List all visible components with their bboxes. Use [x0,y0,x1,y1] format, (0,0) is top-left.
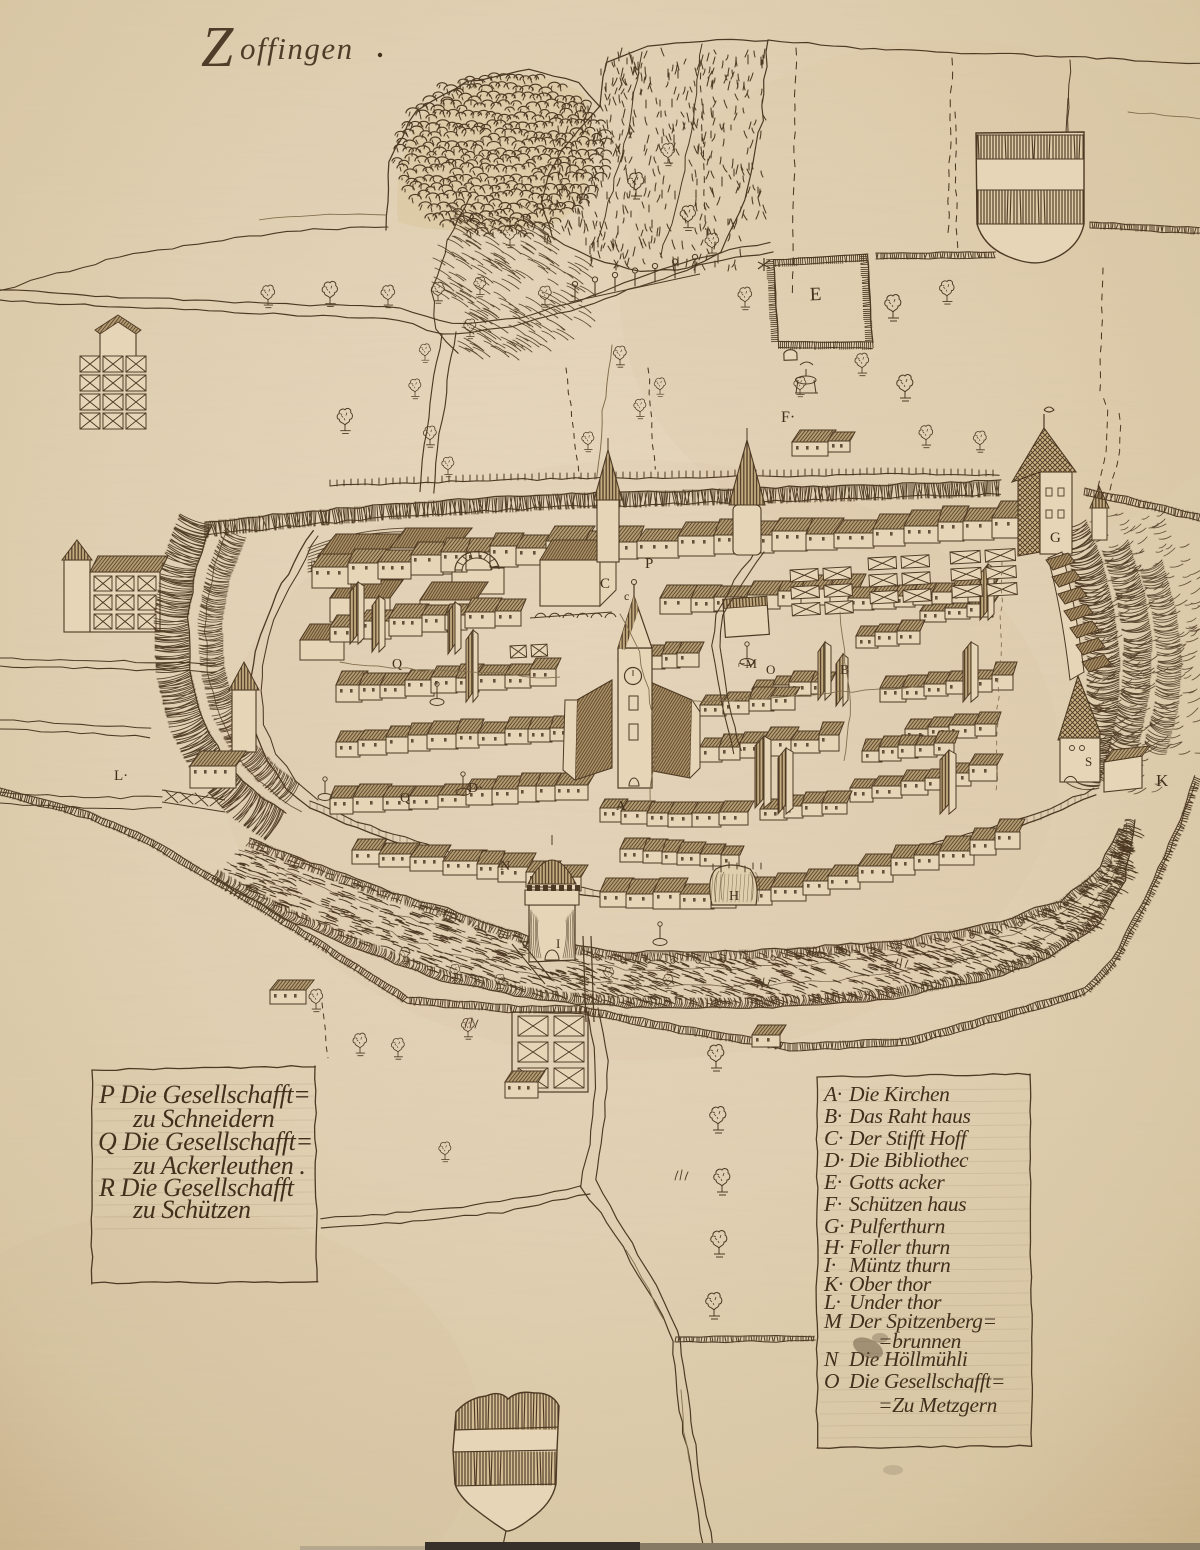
svg-text:N: N [500,859,510,874]
svg-text:Die Bibliothec: Die Bibliothec [848,1148,969,1172]
svg-text:N: N [823,1347,840,1371]
svg-text:C·: C· [824,1126,843,1150]
svg-text:H: H [729,889,739,904]
svg-text:P: P [645,556,653,572]
svg-text:I: I [556,936,560,951]
svg-text:G: G [1050,530,1061,546]
svg-text:F·: F· [823,1192,842,1216]
svg-text:F·: F· [781,409,795,426]
svg-text:A: A [616,799,627,814]
svg-text:O: O [766,662,775,677]
svg-text:M: M [823,1309,843,1333]
svg-text:O: O [824,1369,840,1393]
svg-text:B: B [840,663,849,678]
svg-text:K: K [1156,771,1169,790]
svg-text:Q: Q [392,657,402,672]
svg-text:Z: Z [201,14,234,79]
svg-text:c: c [624,589,629,603]
svg-text:Q: Q [400,791,410,806]
svg-text:E·: E· [823,1170,842,1194]
svg-text:zu Schützen: zu Schützen [132,1195,251,1224]
svg-text:=Zu Metzgern: =Zu Metzgern [878,1393,997,1417]
svg-text:S: S [1085,754,1092,769]
svg-text:B·: B· [824,1104,842,1128]
svg-text:Gotts acker: Gotts acker [849,1170,945,1194]
svg-text:D·: D· [823,1148,844,1172]
svg-text:Die Kirchen: Die Kirchen [848,1082,950,1106]
svg-text:offingen: offingen [240,31,354,66]
svg-text:Die Gesellschafft=: Die Gesellschafft= [848,1369,1005,1393]
svg-text:Schützen haus: Schützen haus [849,1192,966,1216]
svg-text:L·: L· [114,768,128,784]
svg-text:E: E [809,284,821,305]
svg-text:C: C [600,576,610,592]
svg-text:Der Stifft Hoff: Der Stifft Hoff [848,1126,969,1150]
svg-text:Das Raht haus: Das Raht haus [848,1104,970,1128]
svg-text:⌐M: ⌐M [738,656,757,671]
svg-text:A·: A· [822,1082,842,1106]
svg-text:D·: D· [468,781,483,796]
